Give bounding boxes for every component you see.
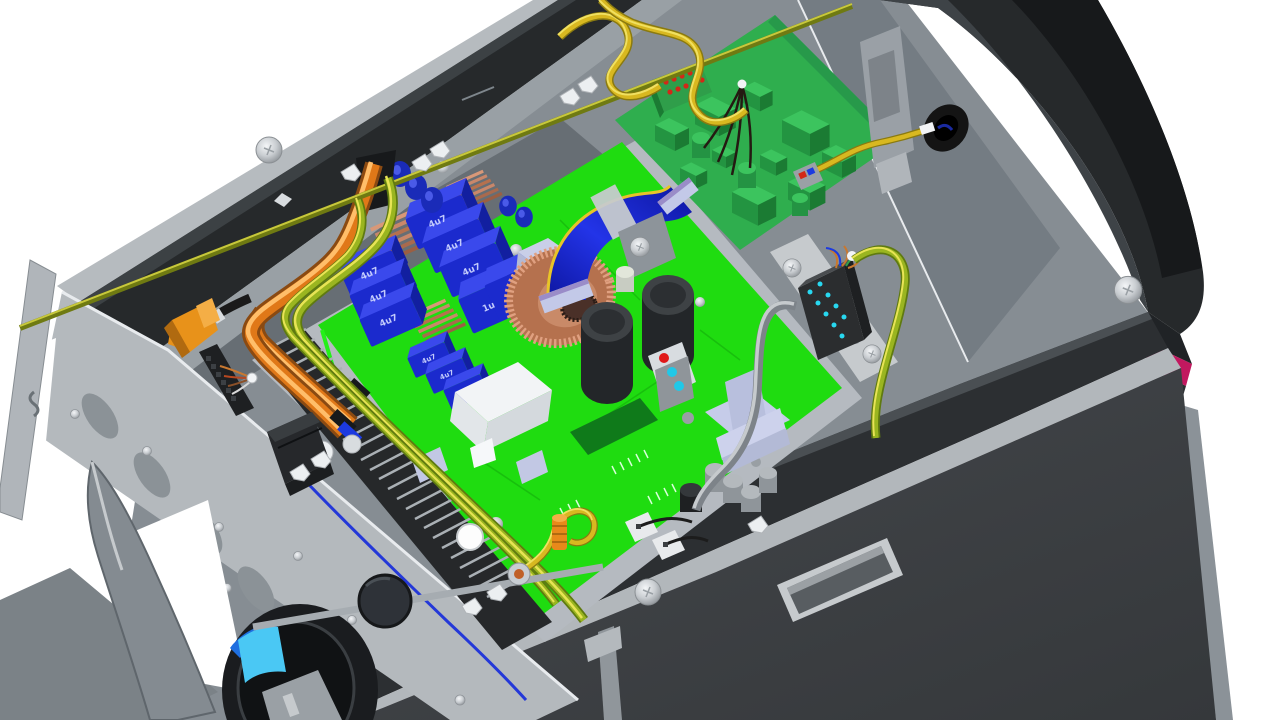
dome-capacitor (421, 187, 443, 213)
screw-front-rail (635, 579, 661, 605)
black-disc (359, 575, 411, 627)
orange-standoff (552, 514, 567, 550)
din-screw-1 (783, 259, 801, 277)
machine-internal-render: 4u7 4u7 4u7 4u7 4u7 4u7 1u 1u 4u7 4u7 4u… (0, 0, 1280, 720)
cad-render-canvas: 4u7 4u7 4u7 4u7 4u7 4u7 1u 1u 4u7 4u7 4u… (0, 0, 1280, 720)
screw-right-corner (1114, 276, 1141, 303)
din-screw-2 (863, 345, 881, 363)
dome-capacitor (499, 196, 517, 217)
dome-capacitor (515, 207, 533, 228)
cable-tie (738, 80, 747, 89)
black-capacitor-1 (581, 302, 633, 404)
deck-hole-white (457, 524, 483, 550)
screw-rear-rim (256, 137, 282, 163)
